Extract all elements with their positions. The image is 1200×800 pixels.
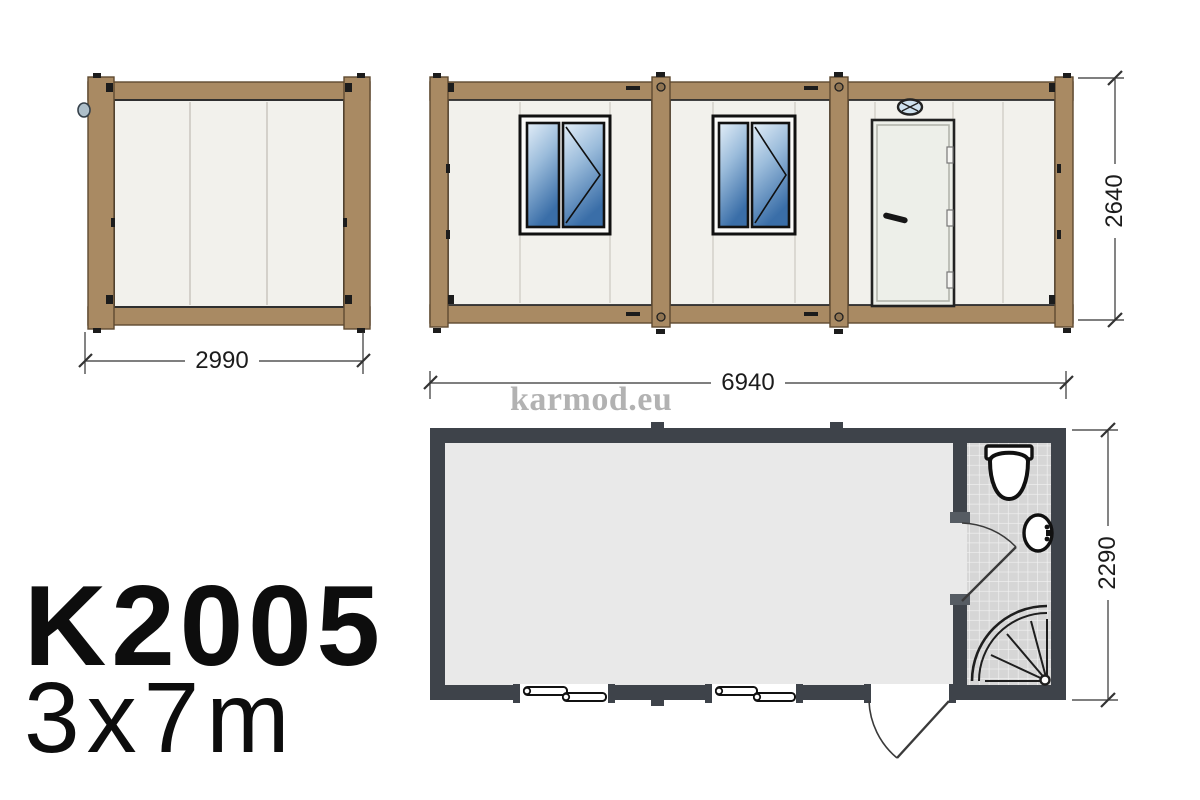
front-elevation-drawing	[430, 71, 1124, 334]
corner-post	[344, 77, 370, 329]
length-dimension-label: 6940	[711, 370, 785, 396]
partition-wall	[953, 597, 967, 685]
size-label: 3x7m	[24, 668, 297, 768]
plan-width-dimension-label: 2290	[1095, 526, 1121, 600]
corner-post	[1055, 77, 1073, 327]
end-wall-panel	[114, 100, 344, 307]
end-width-dimension-label: 2990	[185, 348, 259, 374]
sink-icon	[1024, 515, 1052, 551]
entrance-door-swing-icon	[869, 701, 949, 758]
drawing-sheet: 2990 2640 6940 2290 karmod.eu K2005 3x7m	[0, 0, 1200, 800]
watermark: karmod.eu	[510, 381, 672, 419]
lamp-icon	[898, 100, 922, 115]
joint-post	[830, 77, 848, 327]
entrance-door-icon	[872, 120, 954, 306]
height-dimension-label: 2640	[1102, 164, 1128, 238]
end-elevation-drawing	[78, 73, 370, 374]
corner-post	[430, 77, 448, 327]
joint-post	[652, 77, 670, 327]
partition-wall	[953, 443, 967, 518]
floor-plan-drawing	[424, 371, 1118, 758]
window-icon	[520, 116, 610, 234]
drain-knob-icon	[78, 103, 90, 117]
corner-post	[88, 77, 114, 329]
window-icon	[713, 116, 795, 234]
